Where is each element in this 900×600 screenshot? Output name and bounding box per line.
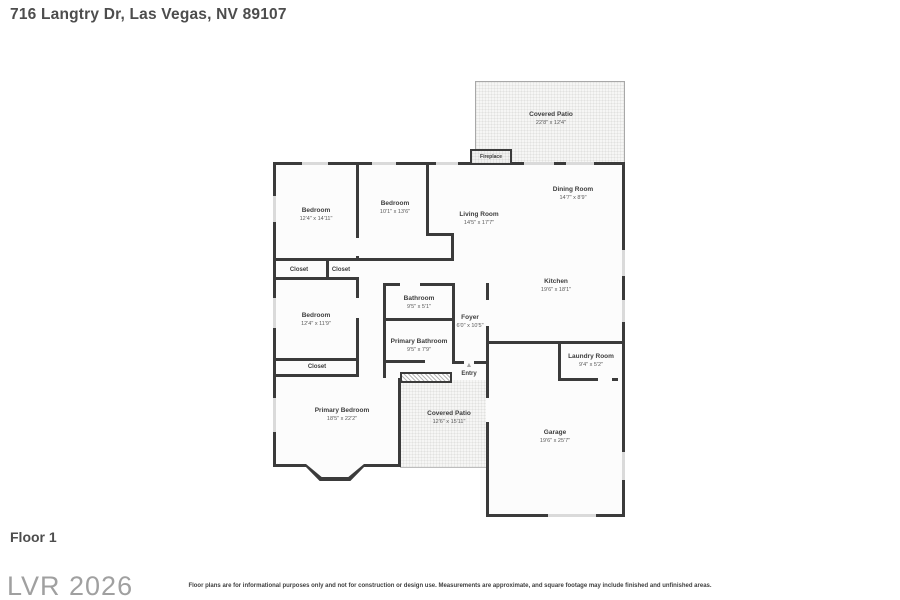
room-label-living-room: Living Room 14'5" x 17'7" xyxy=(459,211,498,227)
room-label-bedroom-1: Bedroom 12'4" x 14'11" xyxy=(300,207,333,223)
wall-segment xyxy=(383,283,386,378)
room-label-bedroom-2: Bedroom 10'1" x 13'6" xyxy=(380,200,410,216)
garage-door-segment xyxy=(548,514,596,517)
window-segment xyxy=(622,452,625,480)
entry-arrow-icon: ▲ xyxy=(461,362,476,369)
room-label-kitchen: Kitchen 19'6" x 18'1" xyxy=(541,278,571,294)
door-opening xyxy=(486,300,489,326)
door-opening xyxy=(400,283,420,286)
floor-plan: Fireplace Covered Patio 22'8" x 12'4" Be… xyxy=(0,0,900,600)
window-segment xyxy=(524,162,554,165)
door-opening xyxy=(356,298,359,318)
fireplace-box: Fireplace xyxy=(470,149,512,165)
room-label-laundry-room: Laundry Room 9'4" x 5'2" xyxy=(568,353,614,369)
disclaimer-text: Floor plans are for informational purpos… xyxy=(0,583,900,589)
wall-segment xyxy=(426,162,429,236)
door-opening xyxy=(356,238,359,256)
door-opening xyxy=(598,378,612,381)
floor-plan-page: 716 Langtry Dr, Las Vegas, NV 89107 xyxy=(0,0,900,600)
wall-segment xyxy=(383,318,455,321)
wall-segment xyxy=(451,233,454,261)
window-segment xyxy=(273,398,276,432)
wall-segment xyxy=(398,378,401,467)
room-label-garage: Garage 19'6" x 25'7" xyxy=(540,429,570,445)
shower-fixture xyxy=(400,372,452,383)
room-label-primary-bathroom: Primary Bathroom 9'5" x 7'9" xyxy=(391,338,448,354)
room-label-bedroom-3: Bedroom 12'4" x 11'9" xyxy=(301,312,331,328)
window-segment xyxy=(372,162,396,165)
fireplace-label: Fireplace xyxy=(480,154,502,160)
wall-segment xyxy=(558,341,561,381)
room-label-dining-room: Dining Room 14'7" x 8'9" xyxy=(553,186,593,202)
floor-label: Floor 1 xyxy=(10,529,57,545)
wall-segment xyxy=(273,374,359,377)
window-segment xyxy=(436,162,458,165)
window-segment xyxy=(566,162,594,165)
entry-marker: ▲ Entry xyxy=(461,362,476,378)
room-label-covered-patio-bottom: Covered Patio 12'6" x 15'11" xyxy=(427,410,471,426)
window-segment xyxy=(622,250,625,276)
room-label-bathroom: Bathroom 9'5" x 5'1" xyxy=(404,295,435,311)
wall-segment xyxy=(273,258,454,261)
room-label-primary-bedroom: Primary Bedroom 18'5" x 22'2" xyxy=(315,407,370,423)
room-label-foyer: Foyer 6'0" x 10'5" xyxy=(456,314,483,330)
wall-segment xyxy=(273,277,359,280)
wall-segment xyxy=(356,277,359,377)
door-opening xyxy=(486,398,489,422)
wall-segment xyxy=(383,360,425,363)
window-segment xyxy=(302,162,328,165)
room-label-closet-bottom: Closet xyxy=(308,363,326,371)
wall-segment xyxy=(486,341,625,344)
wall-segment xyxy=(326,258,329,280)
wall-segment xyxy=(426,233,454,236)
wall-segment xyxy=(452,283,455,363)
room-label-closet-left: Closet xyxy=(290,266,308,274)
wall-segment xyxy=(273,358,359,361)
entry-label: Entry xyxy=(461,370,476,378)
window-segment xyxy=(273,298,276,328)
room-label-covered-patio-top: Covered Patio 22'8" x 12'4" xyxy=(529,111,573,127)
window-segment xyxy=(273,196,276,222)
room-label-closet-right: Closet xyxy=(332,266,350,274)
window-segment xyxy=(622,300,625,322)
